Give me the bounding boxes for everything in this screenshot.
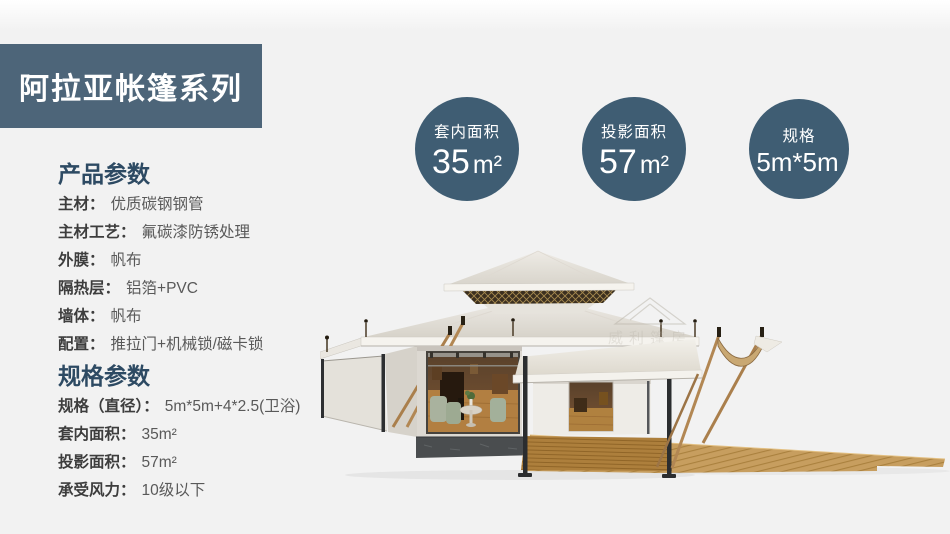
stat-circle-inner-area: 套内面积 35m² — [415, 97, 519, 201]
product-params-heading: 产品参数 — [58, 160, 368, 188]
tent-top-roof — [444, 251, 634, 314]
porch-wall — [533, 379, 651, 436]
window-interior — [428, 352, 518, 432]
wooden-deck — [521, 435, 945, 473]
tent-render-image: 威利篷房 WELL TENT — [320, 240, 950, 500]
stat-circle-spec: 规格 5m*5m — [749, 99, 849, 199]
product-sheet: 阿拉亚帐篷系列 产品参数 主材：优质碳钢钢管 主材工艺：氟碳漆防锈处理 外膜：帆… — [0, 0, 950, 534]
series-title-banner: 阿拉亚帐篷系列 — [0, 44, 262, 128]
tent-illustration: 威利篷房 WELL TENT — [320, 240, 950, 500]
interior-cabinet — [492, 374, 508, 394]
interior-armchair — [430, 396, 447, 422]
tent-left-annex — [320, 336, 417, 438]
stone-skirt — [416, 437, 539, 458]
param-row-material: 主材：优质碳钢钢管 — [58, 196, 368, 214]
top-strip — [0, 0, 950, 30]
stat-circle-projection-area: 投影面积 57m² — [582, 97, 686, 201]
porch-floor — [521, 436, 672, 471]
porch-doorway — [569, 382, 613, 431]
series-title: 阿拉亚帐篷系列 — [19, 64, 243, 108]
